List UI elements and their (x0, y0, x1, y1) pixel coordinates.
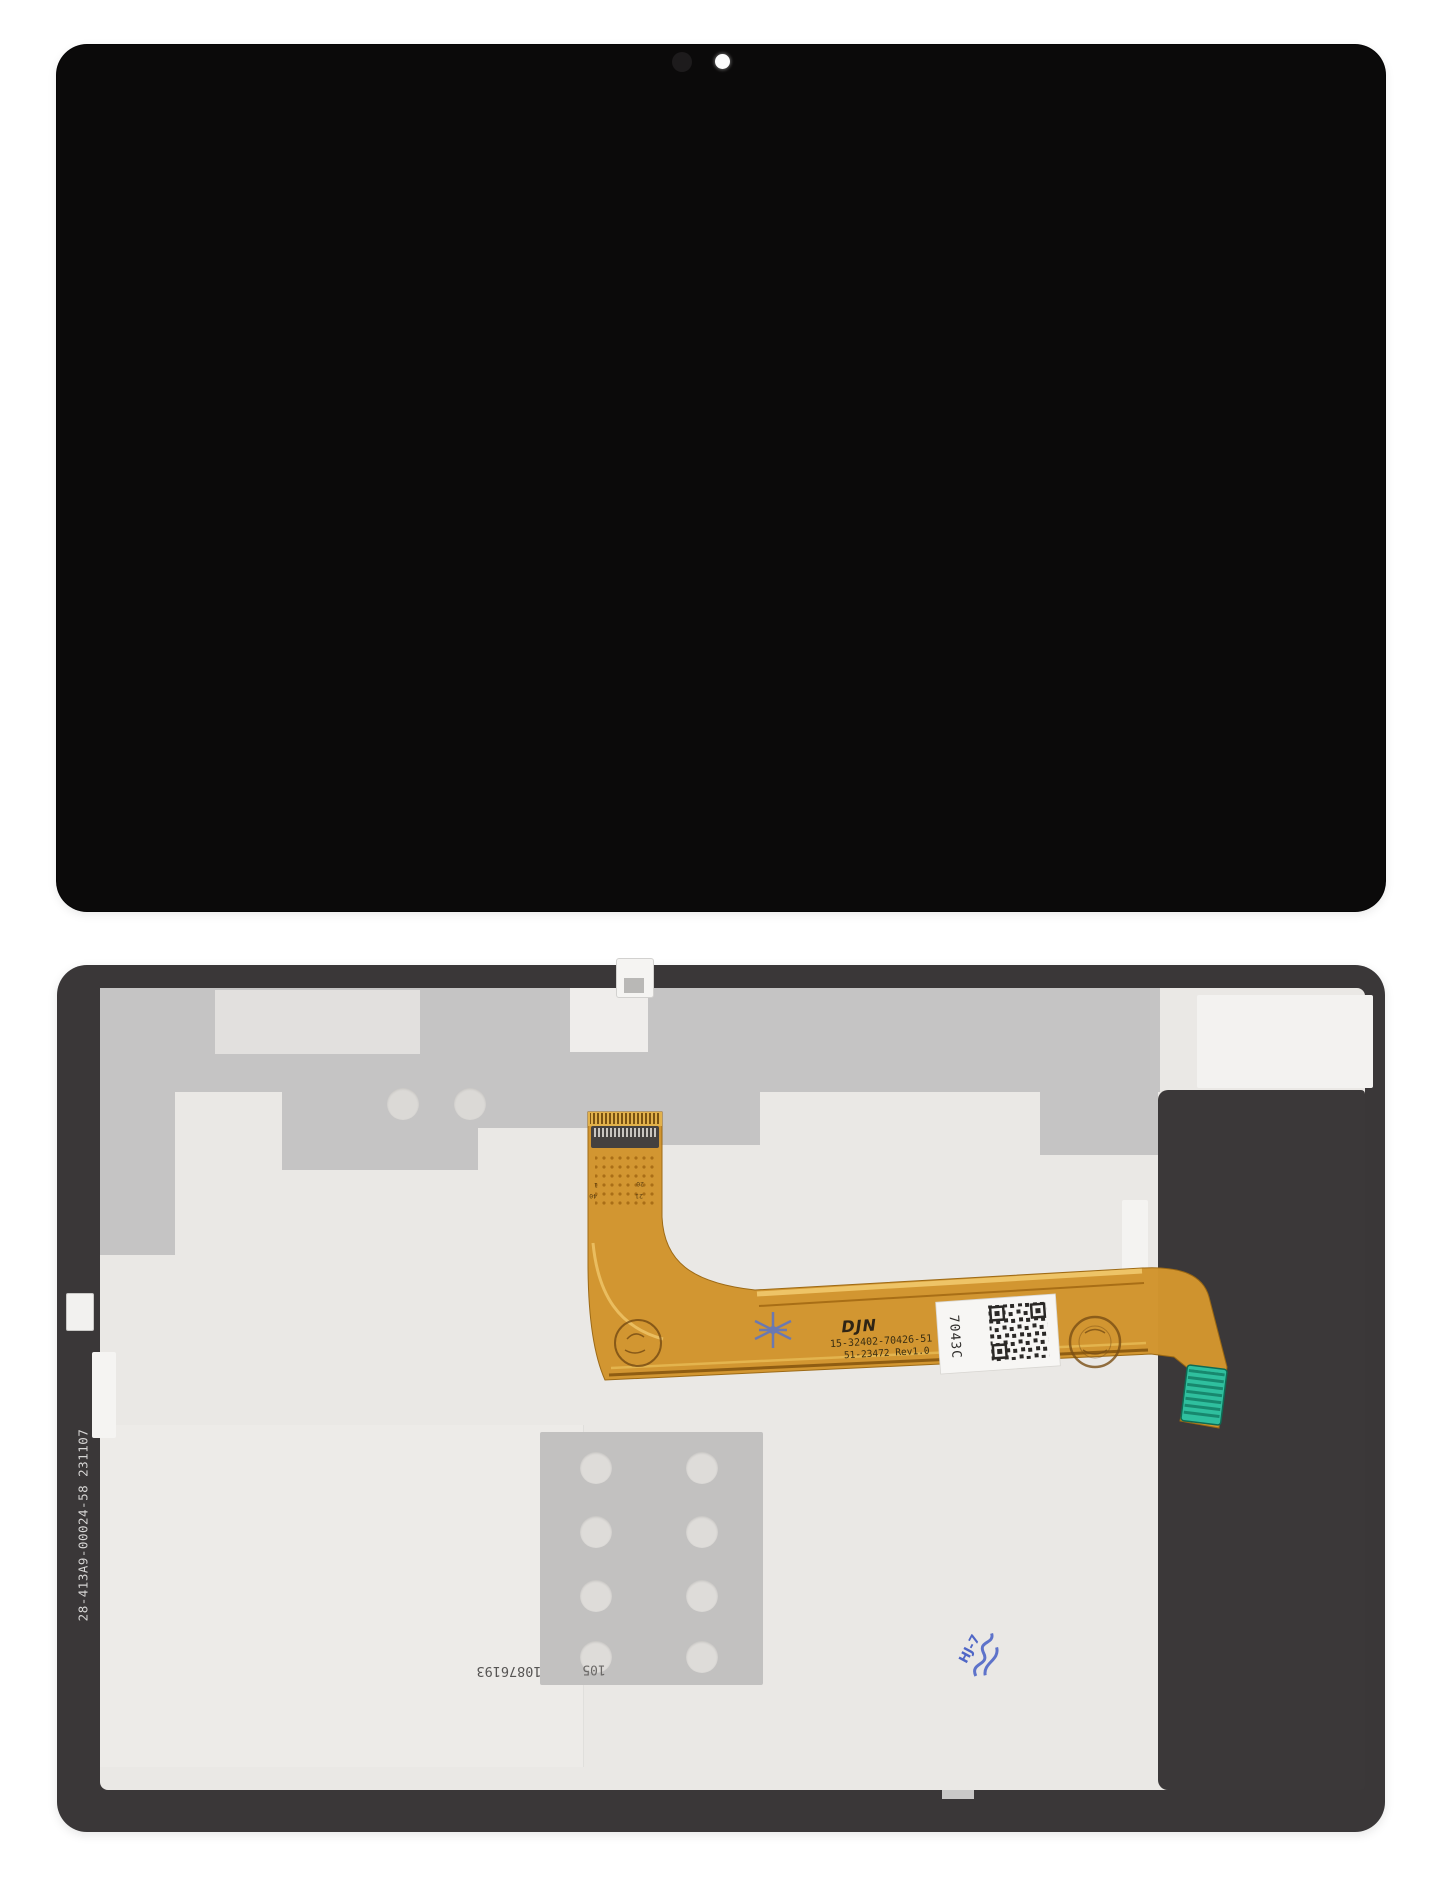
left-bezel-cutout (92, 1352, 116, 1438)
serial-number-fragment: 105 (582, 1662, 605, 1677)
punch-hole (686, 1580, 718, 1612)
tablet-front-photo (57, 45, 1385, 911)
punch-hole (454, 1088, 486, 1120)
punch-hole (686, 1641, 718, 1673)
product-photo-stage: 28-413A9-00024-58 231107 10876193 105 (0, 0, 1445, 1878)
tablet-back-photo: 28-413A9-00024-58 231107 10876193 105 (57, 965, 1385, 1832)
front-camera-hole (715, 54, 730, 69)
serial-number-text: 10876193 (476, 1663, 541, 1679)
punch-hole (686, 1516, 718, 1548)
punch-hole (387, 1088, 419, 1120)
adhesive-patch (1040, 1092, 1158, 1155)
punch-hole (686, 1452, 718, 1484)
left-edge-sticker-tab (66, 1293, 94, 1331)
punch-hole (580, 1516, 612, 1548)
adhesive-patch (478, 1092, 640, 1128)
adhesive-light-sheet (100, 1425, 584, 1767)
rear-camera-notch (624, 978, 644, 993)
adhesive-patch (282, 1092, 478, 1170)
punch-hole (580, 1452, 612, 1484)
adhesive-cutout (215, 990, 420, 1054)
battery-window-black-area (1158, 1090, 1365, 1790)
adhesive-patch-left (100, 1050, 175, 1255)
adhesive-patch-holes (540, 1432, 763, 1685)
left-bezel-part-code: 28-413A9-00024-58 231107 (76, 1429, 91, 1622)
punch-hole (580, 1580, 612, 1612)
white-adhesive-strip (1197, 995, 1373, 1088)
light-sensor-dot (672, 52, 692, 72)
adhesive-patch (640, 1092, 760, 1145)
bottom-bezel-tab (942, 1790, 974, 1799)
white-sticker-tab (1122, 1200, 1148, 1292)
